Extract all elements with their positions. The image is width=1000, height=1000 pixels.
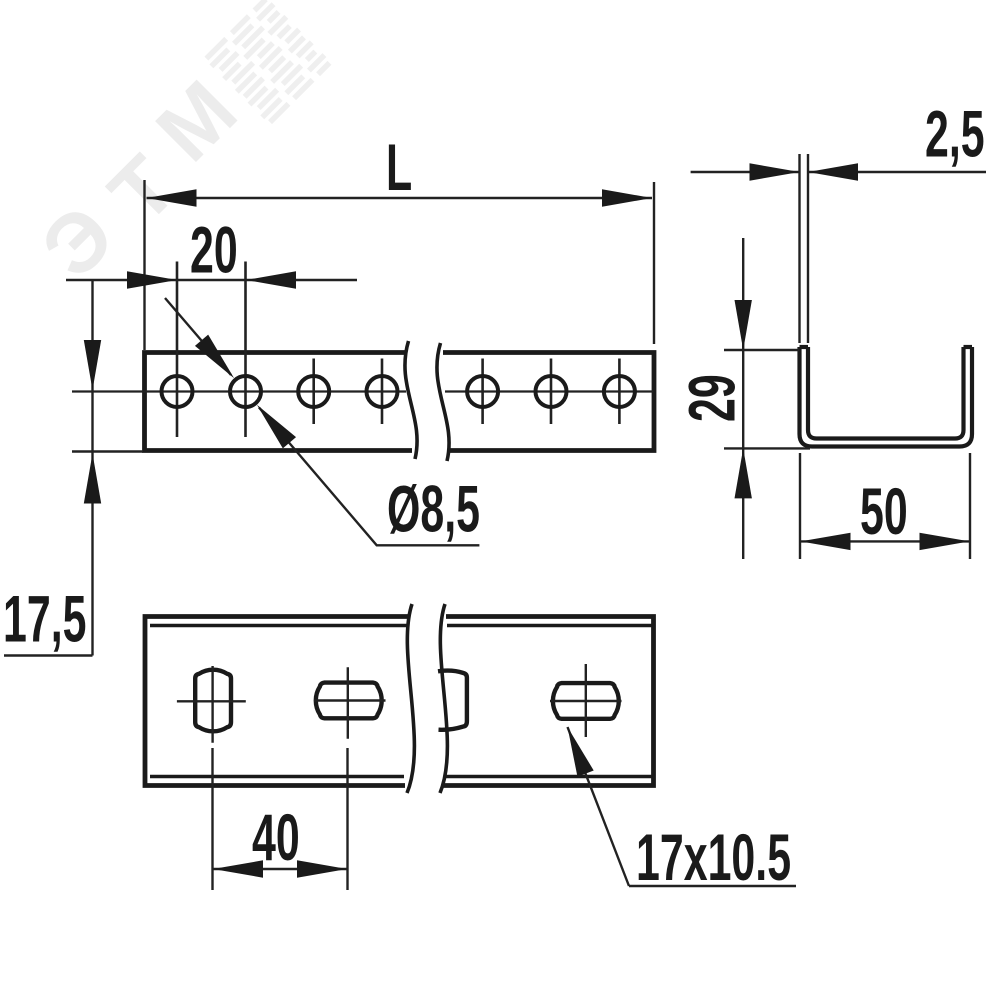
svg-text:17x10.5: 17x10.5: [636, 821, 791, 895]
svg-text:Ø8,5: Ø8,5: [387, 472, 480, 546]
svg-text:L: L: [386, 131, 412, 205]
svg-text:40: 40: [252, 801, 300, 875]
svg-text:29: 29: [675, 374, 749, 422]
svg-text:17,5: 17,5: [3, 582, 86, 656]
svg-text:2,5: 2,5: [925, 97, 985, 171]
svg-text:50: 50: [860, 475, 908, 549]
svg-text:20: 20: [190, 213, 238, 287]
